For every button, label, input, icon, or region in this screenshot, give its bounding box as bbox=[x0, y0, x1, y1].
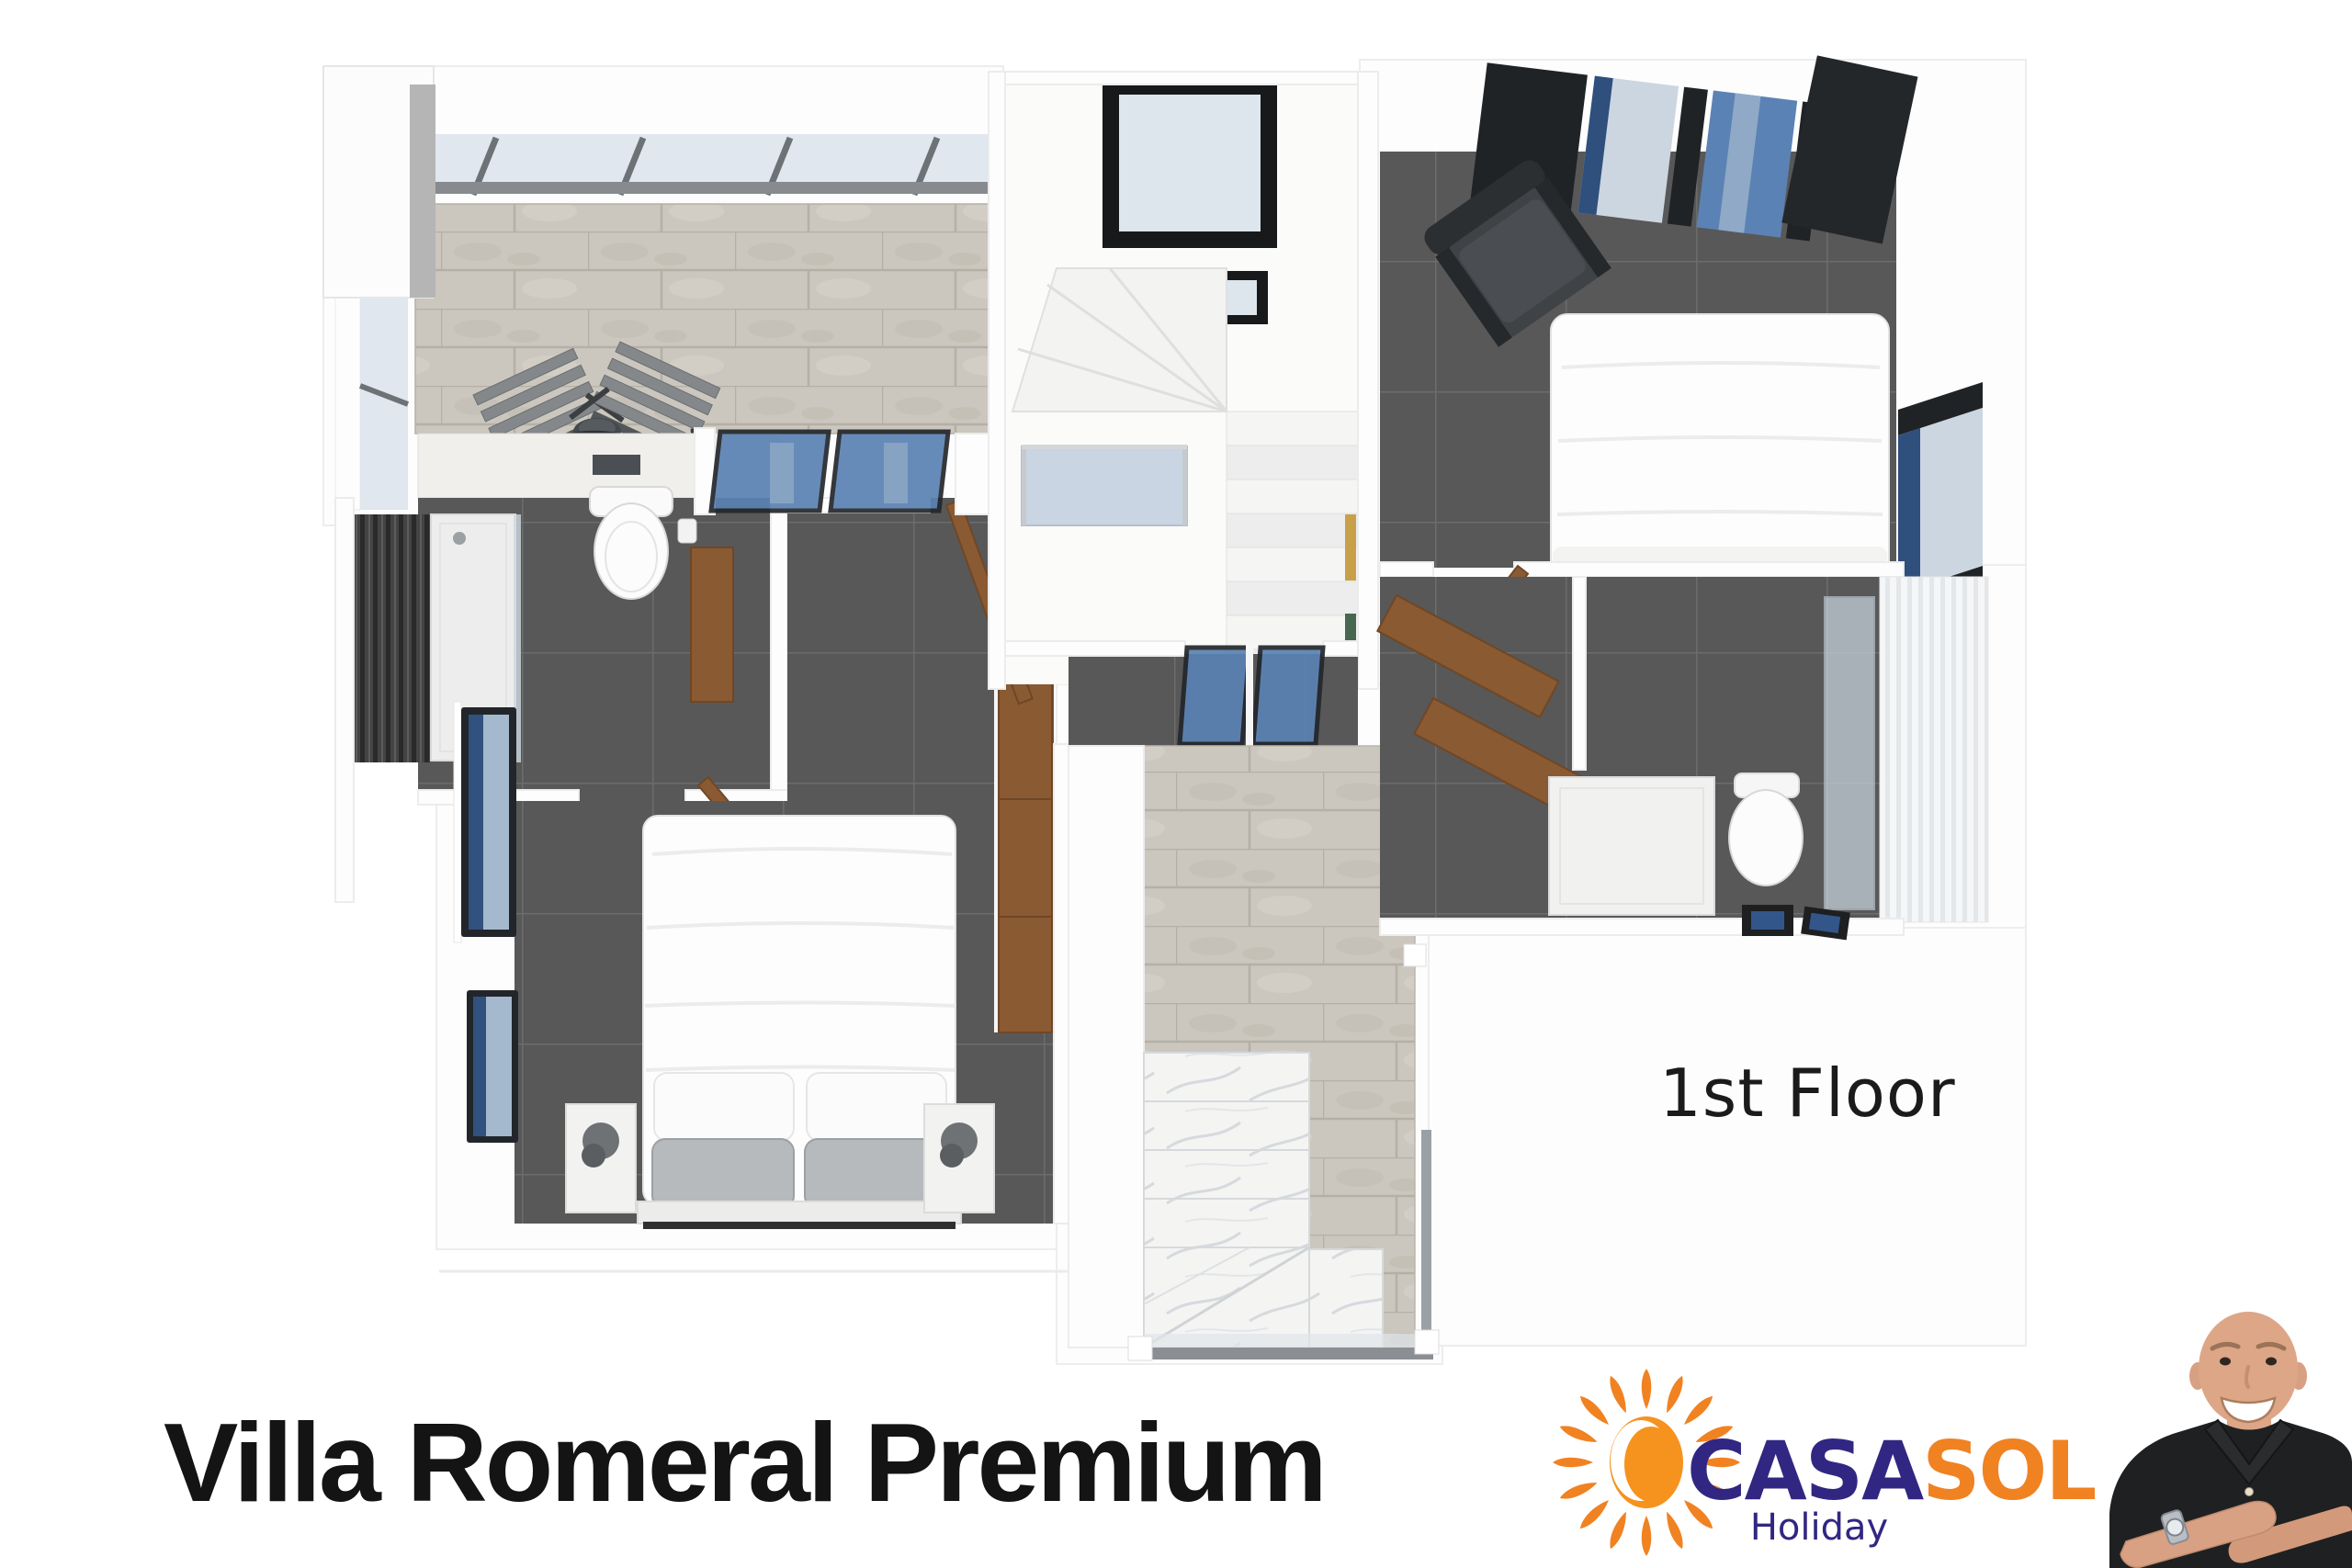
bathroom-right bbox=[1377, 577, 1988, 940]
page: 1st Floor Villa Romeral Premium CASASOL … bbox=[0, 0, 2352, 1568]
bedroom2-window-lower bbox=[467, 990, 518, 1143]
nightstand-left bbox=[566, 1104, 636, 1213]
floor-plan bbox=[323, 55, 2026, 1364]
bedroom2-wardrobe bbox=[994, 682, 1052, 1032]
bathroom-vanity bbox=[691, 547, 733, 702]
floor-label: 1st Floor bbox=[1659, 1055, 1956, 1132]
bathroom2-glass bbox=[1825, 597, 1874, 909]
bathroom2-toilet bbox=[1729, 773, 1803, 886]
agent-head bbox=[2189, 1312, 2307, 1426]
terrace-sliding-door bbox=[695, 428, 1003, 514]
logo-text-casa: CASA bbox=[1687, 1424, 1922, 1518]
casasol-logo-subtitle: Holiday bbox=[1709, 1506, 1929, 1549]
stair-glass-balustrade bbox=[1022, 445, 1187, 525]
wall-art-frame bbox=[1345, 514, 1356, 581]
terrace-pillar bbox=[323, 66, 435, 298]
bedroom2-bed bbox=[638, 816, 961, 1229]
logo-text-sol: SOL bbox=[1922, 1424, 2095, 1518]
shower-feature-wall bbox=[352, 514, 431, 762]
hall-glass-door bbox=[1180, 643, 1323, 746]
sink-basin bbox=[593, 455, 640, 475]
villa-title: Villa Romeral Premium bbox=[164, 1398, 1325, 1527]
stairwell bbox=[989, 72, 1378, 693]
bathroom2-shower bbox=[1549, 777, 1714, 915]
toilet bbox=[590, 487, 673, 599]
floorplan-render bbox=[0, 0, 2352, 1568]
casasol-logo-text: CASASOL bbox=[1687, 1424, 2095, 1518]
terrace-glass-railing bbox=[412, 134, 1000, 195]
agent-photo bbox=[2109, 1312, 2352, 1568]
bathroom2-striped-wall bbox=[1880, 577, 1988, 922]
skylight-large bbox=[1102, 78, 1277, 248]
toilet-paper-holder bbox=[678, 519, 696, 543]
nightstand-right bbox=[924, 1104, 994, 1213]
bedroom2-window-upper bbox=[454, 702, 516, 942]
